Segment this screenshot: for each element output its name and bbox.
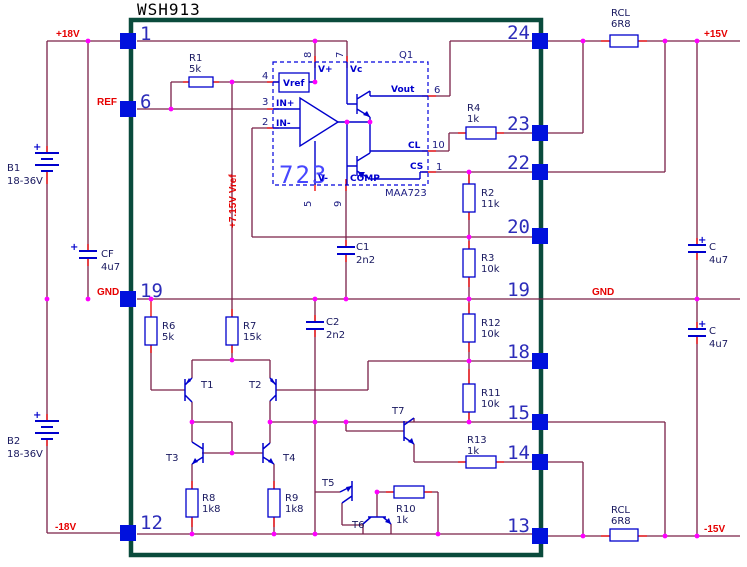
opamp-icon	[300, 98, 338, 146]
polarity-plus-c-top: +	[698, 235, 706, 246]
schematic-canvas: WSH913 +18V REF GND -18V +15V GND -15V +…	[0, 0, 747, 567]
label-c2: C2	[326, 317, 339, 328]
ic-pin-vref: Vref	[283, 79, 305, 89]
polarity-plus-cf: +	[70, 242, 78, 253]
pin-number-22: 22	[507, 152, 530, 174]
pad-pin-24	[532, 33, 548, 49]
value-c2: 2n2	[326, 330, 345, 341]
label-b1: B1	[7, 163, 20, 174]
pad-pin-14	[532, 454, 548, 470]
pin-number-19-left: 19	[140, 280, 163, 302]
resistor-rcl-bottom	[610, 529, 638, 541]
label-r10: R10	[396, 504, 416, 515]
net-label-ref: REF	[97, 97, 117, 108]
value-rcl-bottom: 6R8	[611, 516, 631, 527]
pad-pin-22	[532, 164, 548, 180]
net-label-gnd-left: GND	[97, 287, 119, 298]
pad-pin-6	[120, 101, 136, 117]
label-r13: R13	[467, 435, 487, 446]
label-r6: R6	[162, 321, 175, 332]
pad-pin-1	[120, 33, 136, 49]
net-label-p18: +18V	[56, 29, 80, 40]
pad-pin-12	[120, 525, 136, 541]
value-r13: 1k	[467, 446, 479, 457]
value-b1: 18-36V	[7, 176, 43, 187]
label-c1: C1	[356, 242, 369, 253]
resistor-r12	[463, 314, 475, 342]
label-t2: T2	[248, 380, 261, 391]
polarity-plus-b1: +	[33, 142, 41, 153]
resistor-r1	[189, 77, 213, 87]
value-c-bottom: 4u7	[709, 339, 728, 350]
label-r4: R4	[467, 103, 480, 114]
ic-designator-q1: Q1	[399, 50, 413, 61]
label-r7: R7	[243, 321, 256, 332]
value-b2: 18-36V	[7, 449, 43, 460]
pin-number-18: 18	[507, 341, 530, 363]
ic-pinnum-1: 1	[436, 162, 442, 173]
pad-pin-19	[120, 291, 136, 307]
resistor-r9	[268, 489, 280, 517]
net-label-vref715: +7.15V Vref	[228, 174, 239, 228]
resistor-r4	[466, 127, 496, 139]
value-c1: 2n2	[356, 255, 375, 266]
ic-pin-vplus: V+	[318, 65, 333, 75]
ic-pin-inminus: IN-	[276, 119, 291, 129]
net-label-n18: -18V	[55, 522, 76, 533]
battery-b2-icon	[35, 421, 59, 439]
value-r2: 11k	[481, 199, 500, 210]
resistor-r6	[145, 317, 157, 345]
ic-pinnum-10: 10	[432, 140, 445, 151]
net-label-gnd-right: GND	[592, 287, 614, 298]
ic-pinnum-7: 7	[335, 52, 346, 58]
value-r11: 10k	[481, 399, 500, 410]
ic-pin-vminus: V-	[318, 174, 328, 184]
label-r8: R8	[202, 493, 215, 504]
pad-pin-20	[532, 228, 548, 244]
pin-number-23: 23	[507, 113, 530, 135]
ic-pinnum-8: 8	[303, 52, 314, 58]
resistors	[145, 35, 638, 541]
polarity-plus-b2: +	[33, 410, 41, 421]
label-rcl-bottom: RCL	[611, 505, 630, 516]
value-c-top: 4u7	[709, 255, 728, 266]
pad-pin-15	[532, 414, 548, 430]
ic-pinnum-5: 5	[303, 201, 314, 207]
label-b2: B2	[7, 436, 20, 447]
pin-number-14: 14	[507, 442, 530, 464]
ic-pin-cl: CL	[408, 141, 421, 151]
pin-number-13: 13	[507, 515, 530, 537]
pad-pin-18	[532, 353, 548, 369]
pad-pin-23	[532, 125, 548, 141]
label-t6: T6	[351, 520, 364, 531]
value-r4: 1k	[467, 114, 479, 125]
pin-number-20: 20	[507, 216, 530, 238]
value-rcl-top: 6R8	[611, 19, 631, 30]
resistor-r10	[394, 486, 424, 498]
ic-pin-comp: COMP	[350, 174, 380, 184]
npn-arrow-icon	[363, 111, 370, 117]
pin-number-12: 12	[140, 512, 163, 534]
ic-pinnum-2: 2	[262, 117, 268, 128]
schematic-svg: WSH913 +18V REF GND -18V +15V GND -15V +…	[0, 0, 747, 567]
ic-pin-cs: CS	[410, 162, 423, 172]
label-r3: R3	[481, 253, 494, 264]
label-t3: T3	[165, 453, 178, 464]
resistor-rcl-top	[610, 35, 638, 47]
label-r11: R11	[481, 388, 501, 399]
pin-number-15: 15	[507, 402, 530, 424]
label-cf: CF	[101, 249, 114, 260]
label-c-top: C	[709, 242, 716, 253]
value-r7: 15k	[243, 332, 262, 343]
value-cf: 4u7	[101, 262, 120, 273]
polarity-plus-c-bottom: +	[698, 319, 706, 330]
value-r6: 5k	[162, 332, 174, 343]
resistor-r13	[466, 456, 496, 468]
ic-pinnum-6: 6	[434, 85, 440, 96]
label-r12: R12	[481, 318, 501, 329]
pad-pin-13	[532, 528, 548, 544]
resistor-r2	[463, 184, 475, 212]
battery-b1-icon	[35, 153, 59, 171]
resistor-r8	[186, 489, 198, 517]
ic-pin-inplus: IN+	[276, 99, 294, 109]
label-t7: T7	[391, 406, 404, 417]
resistor-r11	[463, 384, 475, 412]
pin-number-1: 1	[140, 23, 151, 45]
label-r1: R1	[189, 53, 202, 64]
label-c-bottom: C	[709, 326, 716, 337]
ic-pinnum-4: 4	[262, 71, 268, 82]
label-t1: T1	[200, 380, 213, 391]
transistors	[185, 378, 414, 524]
transistor-arrows	[185, 378, 414, 524]
ic-part-number: MAA723	[385, 188, 427, 199]
label-t4: T4	[282, 453, 295, 464]
value-r1: 5k	[189, 64, 201, 75]
ic-pinnum-9: 9	[333, 201, 344, 207]
pin-number-6: 6	[140, 91, 151, 113]
resistor-r7	[226, 317, 238, 345]
value-r3: 10k	[481, 264, 500, 275]
value-r10: 1k	[396, 515, 408, 526]
ic-pin-vout: Vout	[391, 85, 415, 95]
label-t5: T5	[321, 478, 334, 489]
pin-number-19-right: 19	[507, 279, 530, 301]
pin-number-24: 24	[507, 22, 530, 44]
label-r9: R9	[285, 493, 298, 504]
net-label-p15: +15V	[704, 29, 728, 40]
module-title: WSH913	[137, 0, 201, 19]
resistor-r3	[463, 249, 475, 277]
value-r9: 1k8	[285, 504, 304, 515]
ic-pinnum-3: 3	[262, 97, 268, 108]
transistor-t5	[340, 481, 352, 503]
value-r12: 10k	[481, 329, 500, 340]
value-r8: 1k8	[202, 504, 221, 515]
label-rcl-top: RCL	[611, 8, 630, 19]
label-r2: R2	[481, 188, 494, 199]
net-label-n15: -15V	[704, 524, 725, 535]
ic-pin-vc: Vc	[350, 65, 362, 75]
